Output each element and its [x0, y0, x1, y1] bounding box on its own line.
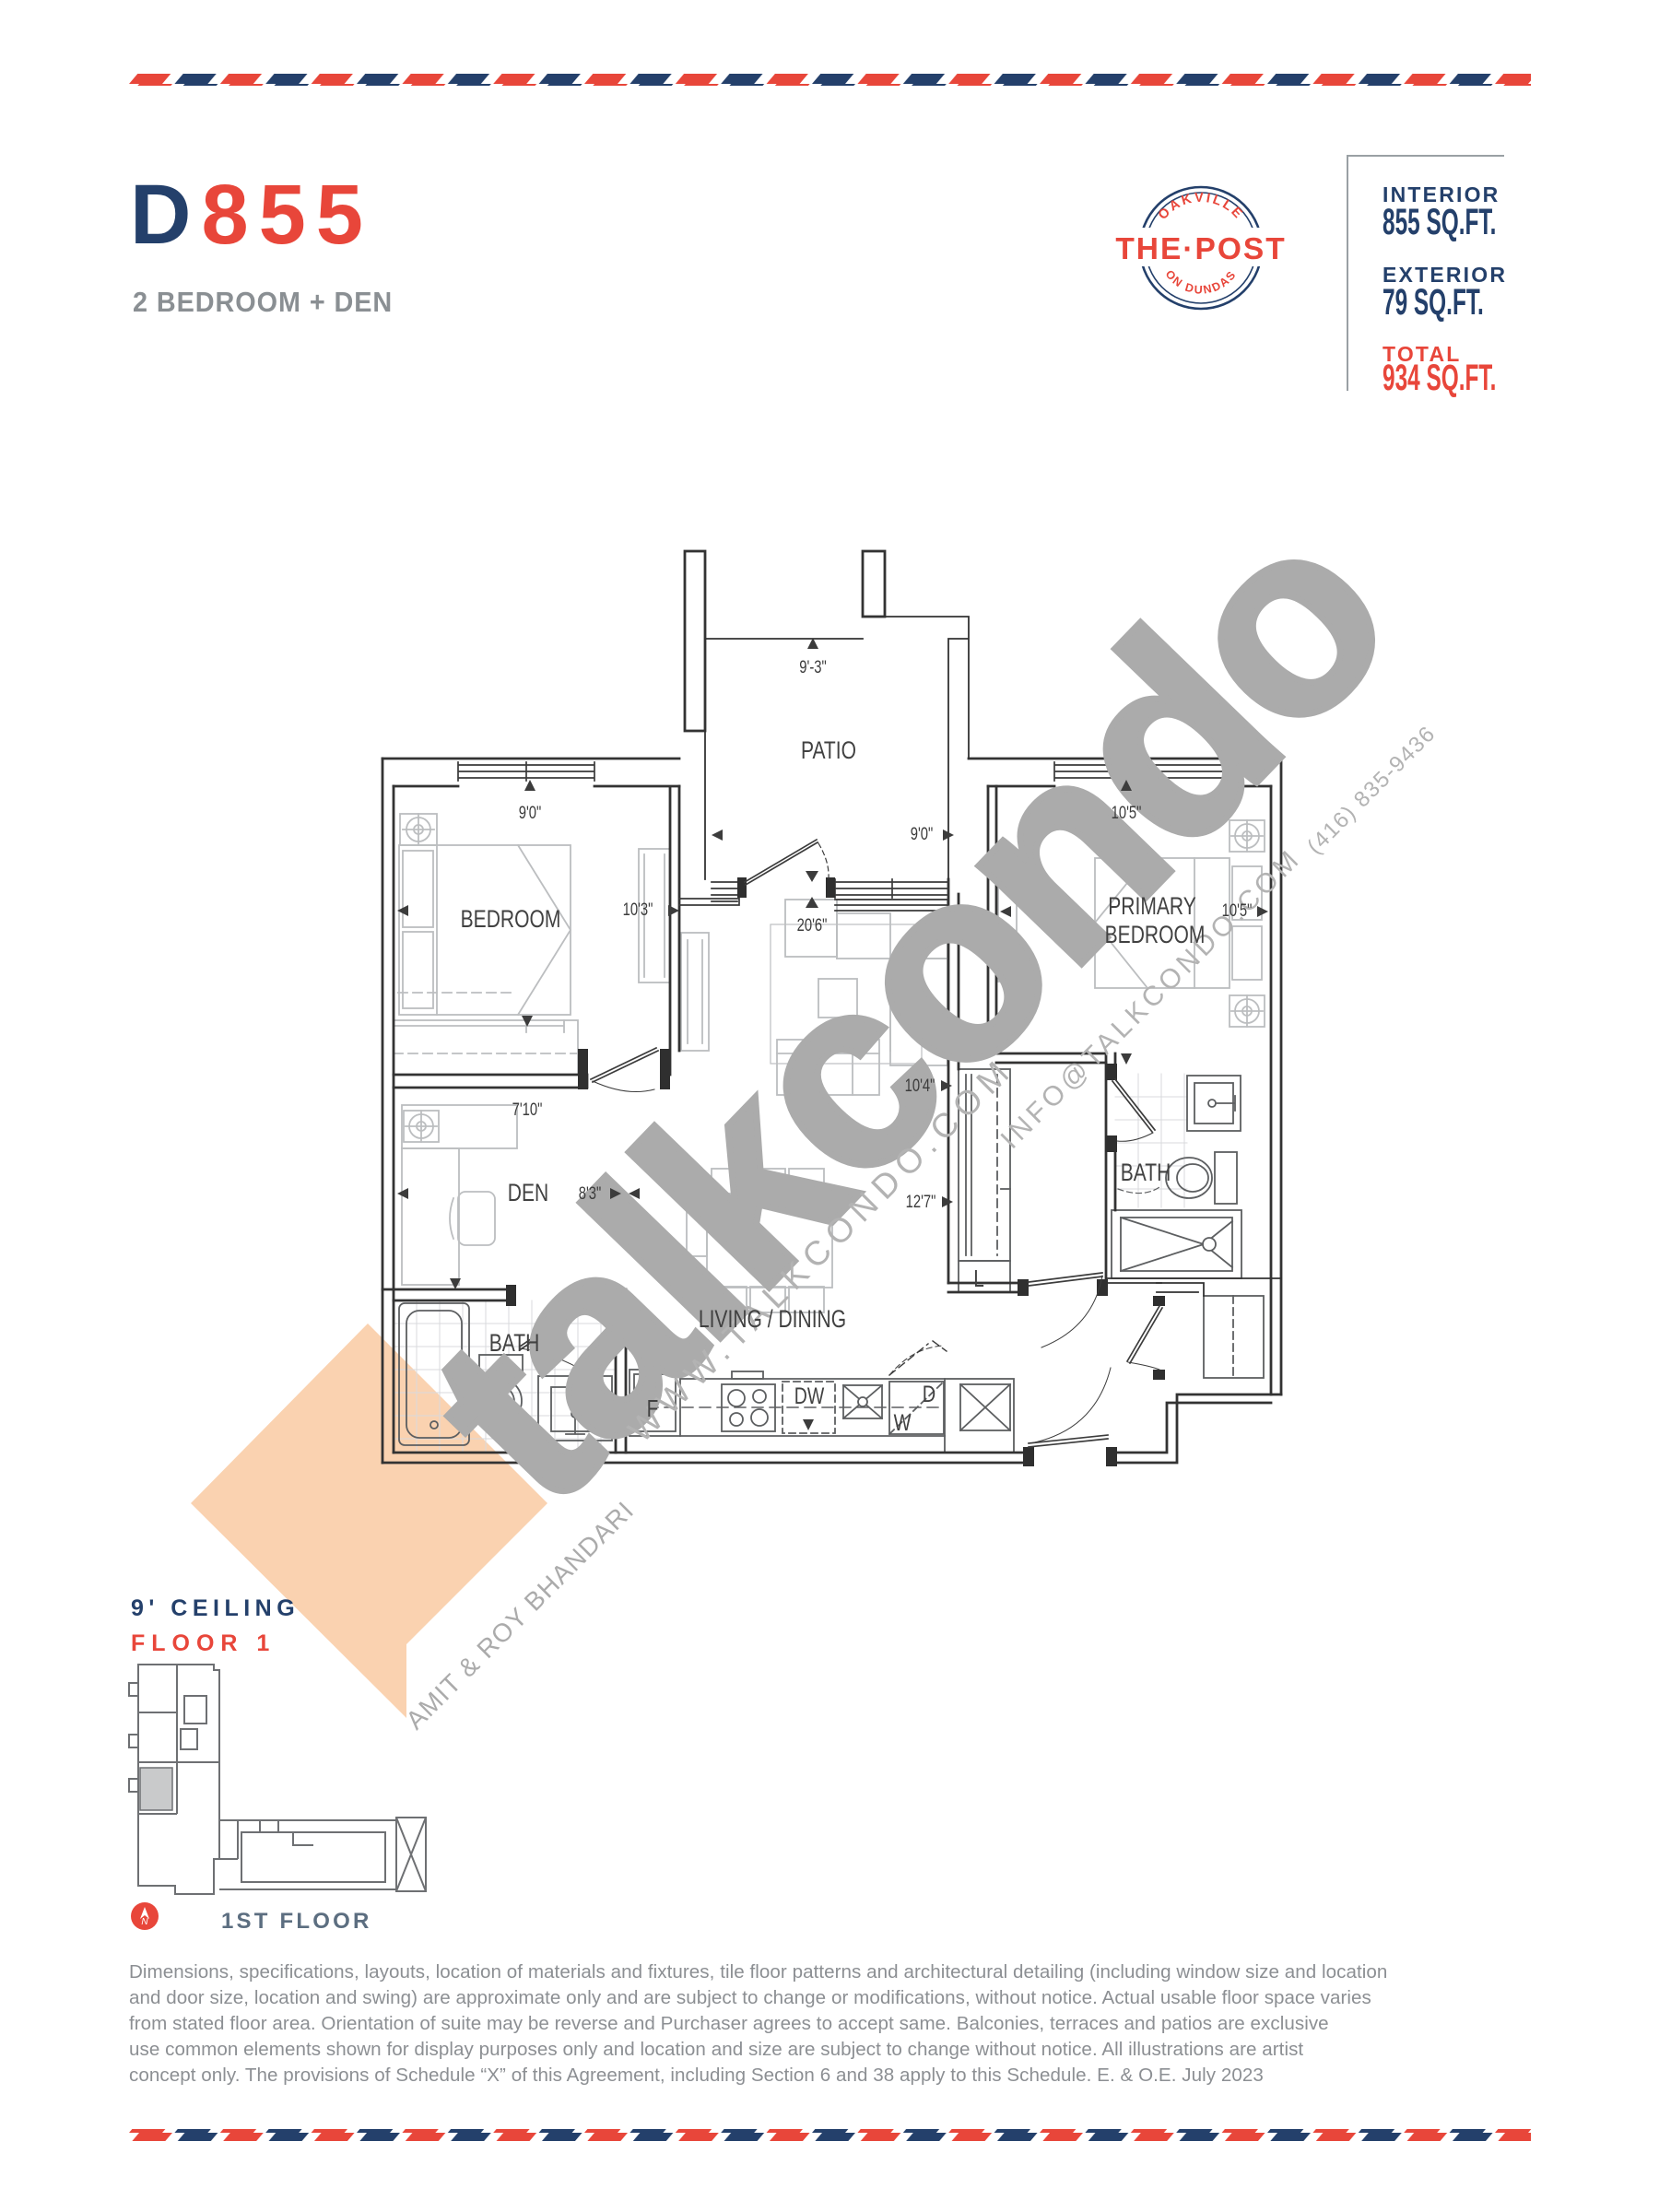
svg-text:9'-3": 9'-3" — [799, 657, 826, 677]
svg-text:1ST FLOOR: 1ST FLOOR — [221, 1909, 371, 1934]
svg-text:PRIMARY: PRIMARY — [1108, 893, 1196, 921]
svg-text:BATH: BATH — [489, 1330, 540, 1358]
svg-text:10'3": 10'3" — [623, 900, 653, 919]
svg-text:10'4": 10'4" — [905, 1076, 935, 1095]
svg-text:12'7": 12'7" — [906, 1192, 936, 1211]
svg-text:79 SQ.FT.: 79 SQ.FT. — [1382, 282, 1484, 324]
svg-text:8'3": 8'3" — [579, 1183, 602, 1203]
svg-text:D855: D855 — [130, 168, 373, 262]
svg-text:934 SQ.FT.: 934 SQ.FT. — [1382, 358, 1496, 399]
svg-text:20'6": 20'6" — [797, 915, 828, 935]
svg-text:N: N — [141, 1917, 148, 1927]
svg-text:10'5": 10'5" — [1222, 900, 1253, 920]
svg-text:THE·POST: THE·POST — [1115, 232, 1286, 266]
svg-text:L: L — [973, 1265, 984, 1292]
svg-text:W: W — [894, 1410, 912, 1436]
svg-text:ON DUNDAS: ON DUNDAS — [1163, 267, 1240, 296]
svg-text:9'0": 9'0" — [911, 824, 934, 843]
svg-text:DW: DW — [794, 1383, 825, 1409]
svg-text:BEDROOM: BEDROOM — [461, 906, 561, 934]
svg-text:7'10": 7'10" — [512, 1100, 543, 1119]
svg-text:D: D — [923, 1382, 935, 1407]
svg-text:PATIO: PATIO — [801, 737, 856, 765]
svg-text:DEN: DEN — [508, 1180, 548, 1207]
svg-text:855 SQ.FT.: 855 SQ.FT. — [1382, 202, 1496, 243]
svg-text:BATH: BATH — [1121, 1159, 1171, 1187]
svg-text:concept only. The provisions o: concept only. The provisions of Schedule… — [129, 2065, 1264, 2086]
svg-text:9'0": 9'0" — [519, 803, 542, 822]
svg-text:Dimensions, specifications, la: Dimensions, specifications, layouts, loc… — [129, 1961, 1387, 1983]
svg-text:from stated floor area. Orient: from stated floor area. Orientation of s… — [129, 2013, 1329, 2034]
svg-text:and door size, location and sw: and door size, location and swing) are a… — [129, 1987, 1371, 2008]
svg-text:BEDROOM: BEDROOM — [1105, 922, 1206, 949]
svg-text:FLOOR 1: FLOOR 1 — [131, 1630, 276, 1656]
svg-text:LIVING / DINING: LIVING / DINING — [699, 1306, 846, 1334]
svg-text:9' CEILING: 9' CEILING — [131, 1595, 300, 1621]
svg-text:F: F — [647, 1395, 659, 1422]
svg-text:2 BEDROOM + DEN: 2 BEDROOM + DEN — [133, 287, 393, 318]
svg-text:use common elements shown for: use common elements shown for display pu… — [129, 2039, 1303, 2060]
svg-text:10'5": 10'5" — [1112, 803, 1142, 822]
